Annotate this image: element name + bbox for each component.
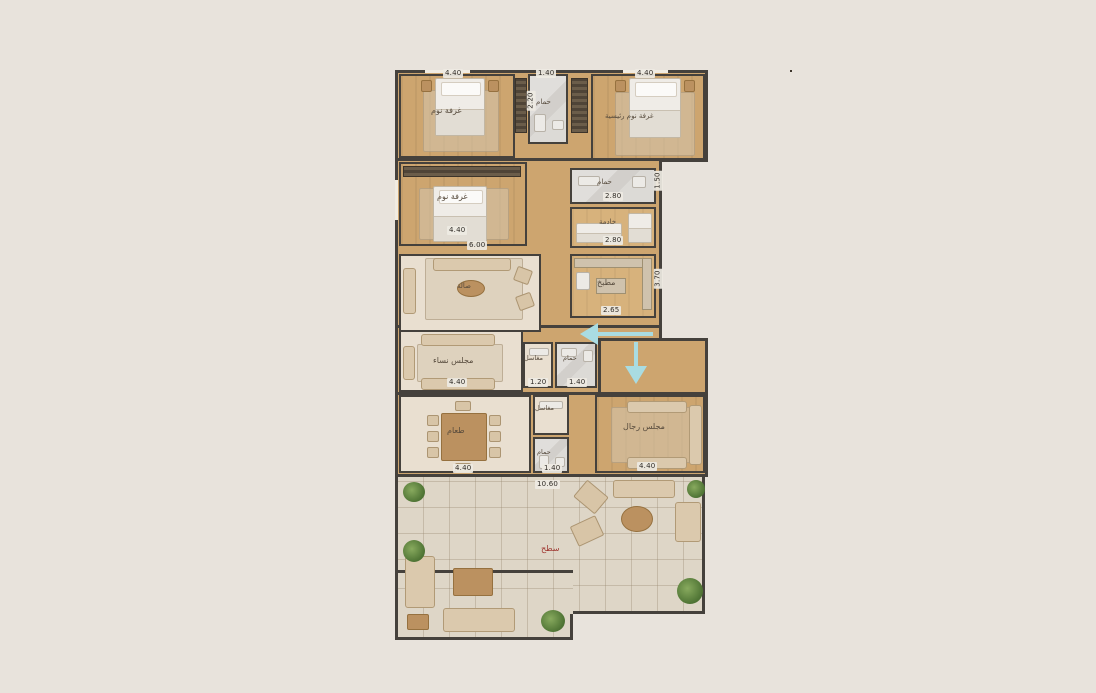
- room-label-master: غرفة نوم رئيسية: [605, 112, 654, 120]
- dim-bath-mid-width: 1.40: [567, 378, 587, 387]
- dim-kitchen-width: 2.65: [601, 306, 621, 315]
- dim-terrace-width: 10.60: [535, 480, 560, 489]
- room-label-wash2: مغاسل: [535, 404, 554, 412]
- dim-women-majlis-width: 4.40: [447, 378, 467, 387]
- room-label-bedroom2: غرفة نوم: [437, 192, 468, 201]
- dim-dining-width: 4.40: [453, 464, 473, 473]
- apartment-floor-plan: غرفة نوم حمام غرفة نوم رئيسية غرفة نوم ح…: [395, 70, 712, 640]
- room-label-wash1: مغاسل: [524, 354, 543, 362]
- dim-bath2-width: 2.80: [603, 192, 623, 201]
- entry-arrow-left-head-icon: [580, 323, 598, 345]
- dim-bath-top-depth: 2.20: [527, 90, 536, 110]
- dim-maid-width: 2.80: [603, 236, 623, 245]
- entry-arrow-down-icon: [634, 342, 638, 366]
- dim-kitchen-depth: 3.70: [654, 268, 663, 288]
- bedroom-top-left: [399, 74, 515, 158]
- hall: [399, 254, 541, 332]
- terrace-sofa-bottom: [443, 608, 515, 632]
- dim-men-majlis-width: 4.40: [637, 462, 657, 471]
- room-label-bedroom1: غرفة نوم: [431, 106, 462, 115]
- room-label-kitchen: مطبخ: [597, 278, 615, 287]
- window: [395, 180, 398, 220]
- plant: [687, 480, 705, 498]
- dim-bath-low-width: 1.40: [542, 464, 562, 473]
- plant: [403, 540, 425, 562]
- terrace-sofa-top: [613, 480, 675, 498]
- plant: [403, 482, 425, 502]
- room-label-bath-low: حمام: [537, 448, 551, 456]
- plan-block-vestibule: [598, 338, 708, 398]
- entry-arrow-left-icon: [597, 332, 653, 336]
- room-label-hall: صالة: [457, 282, 471, 290]
- wardrobe-left: [515, 78, 527, 133]
- room-label-bath-top: حمام: [536, 98, 551, 106]
- terrace-table-left: [453, 568, 493, 596]
- room-label-bath-mid: حمام: [563, 354, 577, 362]
- wardrobe: [790, 70, 792, 72]
- dim-bath2-depth: 1.50: [654, 170, 663, 190]
- dim-bedroom2-width: 4.40: [447, 226, 467, 235]
- room-label-women-majlis: مجلس نساء: [433, 356, 473, 365]
- entry-arrow-down-head-icon: [625, 366, 647, 384]
- terrace-armchair-right: [675, 502, 701, 542]
- terrace-side-table: [407, 614, 429, 630]
- dim-wash1-width: 1.20: [528, 378, 548, 387]
- dim-bedroom2-span: 6.00: [467, 241, 487, 250]
- terrace-round-table: [621, 506, 653, 532]
- room-label-dining: طعام: [447, 426, 465, 435]
- plant: [541, 610, 565, 632]
- room-label-terrace: سطح: [541, 544, 559, 553]
- dim-bath-top-width: 1.40: [536, 69, 556, 78]
- room-label-men-majlis: مجلس رجال: [623, 422, 665, 431]
- terrace-sofa-left: [405, 556, 435, 608]
- washroom-guest: [533, 395, 569, 435]
- floor-plan-image: غرفة نوم حمام غرفة نوم رئيسية غرفة نوم ح…: [0, 0, 1096, 693]
- wardrobe-right: [571, 78, 588, 133]
- room-label-bath2: حمام: [597, 178, 612, 186]
- dim-bedroom1-width: 4.40: [443, 69, 463, 78]
- dining-room: [399, 395, 531, 473]
- plant: [677, 578, 703, 604]
- room-label-maid: خادمة: [599, 218, 616, 226]
- dim-master-width: 4.40: [635, 69, 655, 78]
